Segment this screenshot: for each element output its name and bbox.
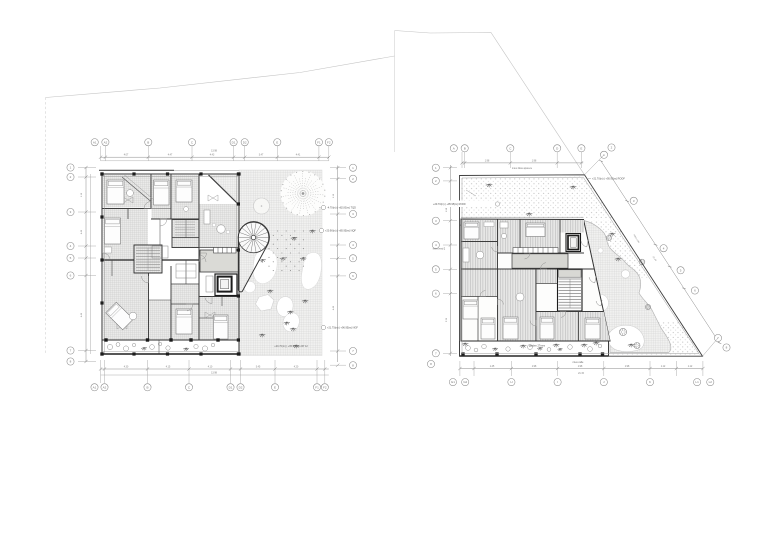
svg-text:D2: D2: [239, 385, 243, 389]
svg-text:A: A: [453, 146, 455, 150]
svg-text:1.98: 1.98: [532, 160, 537, 162]
svg-text:mies 2das aparece: mies 2das aparece: [512, 167, 533, 170]
svg-text:1.12: 1.12: [688, 366, 693, 368]
svg-text:D1: D1: [229, 385, 233, 389]
svg-text:4.41: 4.41: [296, 155, 301, 157]
svg-text:13.98: 13.98: [211, 151, 217, 153]
svg-text:H: H: [510, 380, 512, 384]
svg-text:21.15: 21.15: [578, 373, 584, 375]
svg-text:F1: F1: [317, 140, 321, 144]
svg-text:B: B: [464, 146, 466, 150]
svg-text:13.98: 13.98: [211, 372, 217, 374]
svg-text:4.15: 4.15: [166, 366, 171, 368]
svg-text:F1: F1: [315, 385, 319, 389]
svg-text:B: B: [147, 140, 149, 144]
svg-text:A1: A1: [93, 385, 97, 389]
svg-text:K: K: [649, 380, 651, 384]
svg-text:E: E: [276, 140, 278, 144]
svg-text:E: E: [580, 146, 582, 150]
svg-text:A2: A2: [103, 385, 107, 389]
svg-text:4.10: 4.10: [208, 366, 213, 368]
svg-text:+20.90(m) | +85.95(m) NQF: +20.90(m) | +85.95(m) NQF: [325, 230, 356, 233]
svg-text:L1: L1: [695, 380, 699, 384]
svg-text:G1: G1: [451, 380, 455, 384]
svg-text:E: E: [274, 385, 276, 389]
svg-text:4.43: 4.43: [210, 155, 215, 157]
svg-text:+20.70(m) | +95.95(m) ROOF: +20.70(m) | +95.95(m) ROOF: [433, 203, 466, 206]
svg-text:garden 27mes: garden 27mes: [529, 344, 546, 347]
svg-text:3.45: 3.45: [256, 366, 261, 368]
svg-text:1.98: 1.98: [485, 160, 490, 162]
svg-text:G2: G2: [463, 380, 467, 384]
svg-text:A2: A2: [104, 140, 108, 144]
svg-text:1.98: 1.98: [532, 366, 537, 368]
svg-text:mies calle: mies calle: [573, 361, 584, 364]
svg-text:-4.70(m) | +82.00(m) TQD: -4.70(m) | +82.00(m) TQD: [327, 207, 356, 210]
svg-text:+20.70(m) | +95.95(m)+OP 12: +20.70(m) | +95.95(m)+OP 12: [274, 345, 308, 348]
svg-text:A1: A1: [93, 140, 97, 144]
svg-text:4.47: 4.47: [168, 155, 173, 157]
svg-text:1.45: 1.45: [490, 366, 495, 368]
svg-text:D2: D2: [243, 140, 247, 144]
svg-text:mies vend 2: mies vend 2: [433, 249, 446, 251]
svg-text:D1: D1: [232, 140, 236, 144]
svg-text:3.47: 3.47: [259, 155, 264, 157]
svg-text:F2: F2: [327, 140, 331, 144]
svg-text:1.12: 1.12: [661, 366, 666, 368]
svg-text:L2: L2: [709, 380, 713, 384]
svg-text:1.98: 1.98: [625, 366, 630, 368]
svg-text:+21.75(m) | +96.95(m) NGF: +21.75(m) | +96.95(m) NGF: [327, 327, 358, 330]
svg-text:F2: F2: [323, 385, 327, 389]
svg-text:4.30: 4.30: [124, 366, 129, 368]
svg-text:+21.70(m) | +95.95(m) ROOF: +21.70(m) | +95.95(m) ROOF: [592, 178, 625, 181]
svg-text:4.07: 4.07: [124, 155, 129, 157]
svg-text:B: B: [146, 385, 148, 389]
svg-text:4.20: 4.20: [294, 366, 299, 368]
svg-text:1.98: 1.98: [578, 366, 583, 368]
svg-text:I: I: [557, 380, 558, 384]
